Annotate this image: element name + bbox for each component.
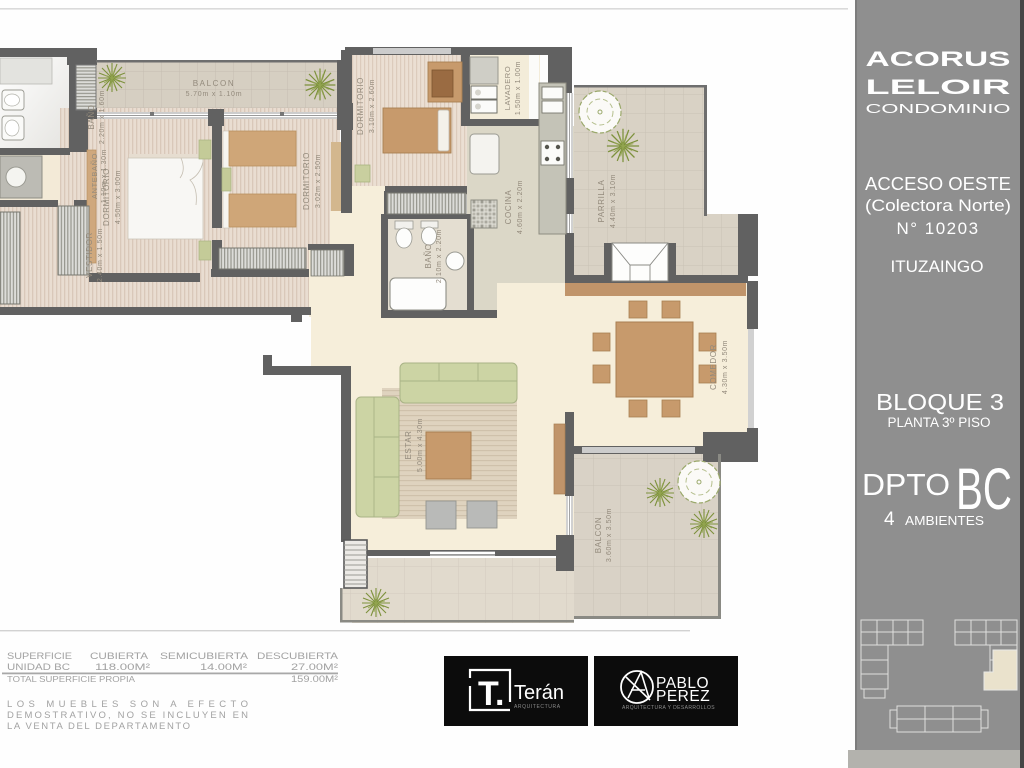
svg-text:AMBIENTES: AMBIENTES xyxy=(905,513,984,528)
svg-text:3.02m x 2.50m: 3.02m x 2.50m xyxy=(315,154,322,208)
svg-text:BALCON: BALCON xyxy=(594,517,603,554)
svg-text:159.00M²: 159.00M² xyxy=(291,674,338,685)
svg-text:BAÑO: BAÑO xyxy=(424,243,433,268)
svg-text:27.00M²: 27.00M² xyxy=(291,662,338,673)
svg-text:ANTEBAÑO: ANTEBAÑO xyxy=(90,153,99,199)
svg-text:Terán: Terán xyxy=(514,682,564,704)
svg-text:3.60m x 3.50m: 3.60m x 3.50m xyxy=(606,508,613,562)
svg-text:14.00M²: 14.00M² xyxy=(200,662,247,673)
svg-text:SUPERFICIE: SUPERFICIE xyxy=(7,651,72,662)
svg-text:(Colectora Norte): (Colectora Norte) xyxy=(865,196,1011,215)
svg-text:4.40m x 3.10m: 4.40m x 3.10m xyxy=(610,174,617,228)
svg-text:PARRILLA: PARRILLA xyxy=(597,179,606,222)
svg-text:TOTAL SUPERFICIE PROPIA: TOTAL SUPERFICIE PROPIA xyxy=(7,674,135,684)
svg-text:2.10m x 2.20m: 2.10m x 2.20m xyxy=(436,229,443,283)
svg-text:5.00m x 4.30m: 5.00m x 4.30m xyxy=(417,418,424,472)
svg-text:4.30m x 3.50m: 4.30m x 3.50m xyxy=(722,340,729,394)
svg-text:5.70m x 1.10m: 5.70m x 1.10m xyxy=(186,91,243,98)
svg-text:ACCESO OESTE: ACCESO OESTE xyxy=(865,174,1011,194)
svg-text:BLOQUE 3: BLOQUE 3 xyxy=(876,389,1004,415)
svg-text:4: 4 xyxy=(884,509,895,530)
svg-text:2.20m x 1.60m: 2.20m x 1.60m xyxy=(99,90,106,144)
svg-text:DORMITORIO: DORMITORIO xyxy=(102,168,111,226)
svg-text:118.00M²: 118.00M² xyxy=(95,662,150,673)
svg-text:BALCON: BALCON xyxy=(193,79,236,88)
svg-text:PEREZ: PEREZ xyxy=(656,688,710,705)
svg-text:LA VENTA DEL DEPARTAMENTO: LA VENTA DEL DEPARTAMENTO xyxy=(7,721,190,732)
svg-text:2.40m x 1.50m: 2.40m x 1.50m xyxy=(97,228,104,282)
svg-text:ARQUITECTURA: ARQUITECTURA xyxy=(514,704,561,710)
svg-text:LELOIR: LELOIR xyxy=(866,75,1012,99)
svg-text:ACORUS: ACORUS xyxy=(866,47,1011,71)
svg-text:UNIDAD BC: UNIDAD BC xyxy=(7,662,70,673)
svg-text:CONDOMINIO: CONDOMINIO xyxy=(866,101,1011,116)
svg-text:3.10m x 2.60m: 3.10m x 2.60m xyxy=(369,79,376,133)
svg-text:COCINA: COCINA xyxy=(504,190,513,225)
svg-text:DESCUBIERTA: DESCUBIERTA xyxy=(257,651,339,662)
svg-text:4.60m x 2.20m: 4.60m x 2.20m xyxy=(517,180,524,234)
svg-text:VESTIDOR: VESTIDOR xyxy=(85,232,94,278)
svg-text:T.: T. xyxy=(478,675,504,713)
svg-text:DORMITORIO: DORMITORIO xyxy=(356,77,365,135)
svg-text:ARQUITECTURA Y DESARROLLOS: ARQUITECTURA Y DESARROLLOS xyxy=(622,705,715,711)
svg-text:ESTAR: ESTAR xyxy=(404,430,413,459)
svg-text:N° 10203: N° 10203 xyxy=(896,219,979,238)
svg-text:ITUZAINGO: ITUZAINGO xyxy=(891,258,984,276)
svg-text:PLANTA 3º PISO: PLANTA 3º PISO xyxy=(888,415,991,430)
svg-text:4.50m x 3.00m: 4.50m x 3.00m xyxy=(115,170,122,224)
svg-text:COMEDOR: COMEDOR xyxy=(709,344,718,390)
svg-text:SEMICUBIERTA: SEMICUBIERTA xyxy=(160,651,249,662)
svg-text:DPTO: DPTO xyxy=(862,467,950,502)
svg-text:DEMOSTRATIVO, NO SE INCLUYEN E: DEMOSTRATIVO, NO SE INCLUYEN EN xyxy=(7,710,248,721)
svg-text:BAÑO: BAÑO xyxy=(87,104,96,129)
svg-text:1.50m x 1.00m: 1.50m x 1.00m xyxy=(515,61,522,115)
svg-text:LAVADERO: LAVADERO xyxy=(503,66,512,111)
svg-text:DORMITORIO: DORMITORIO xyxy=(302,152,311,210)
svg-text:CUBIERTA: CUBIERTA xyxy=(90,651,149,662)
